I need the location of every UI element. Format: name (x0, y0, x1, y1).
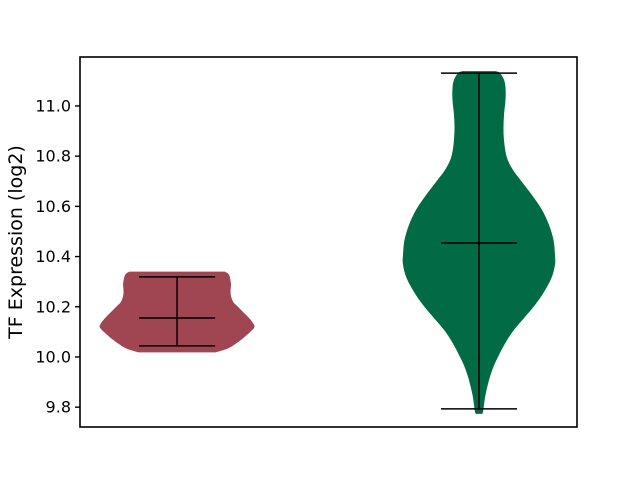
y-tick-label-5: 10.0 (35, 347, 71, 366)
y-tick-label-6: 9.8 (46, 398, 71, 417)
y-axis-label: TF Expression (log2) (5, 145, 27, 340)
y-tick-label-2: 10.6 (35, 197, 71, 216)
y-tick-label-3: 10.4 (35, 247, 71, 266)
y-tick-label-0: 11.0 (35, 96, 71, 115)
y-tick-label-4: 10.2 (35, 297, 71, 316)
violin-chart: 11.010.810.610.410.210.09.8TF Expression… (0, 0, 640, 480)
y-tick-label-1: 10.8 (35, 147, 71, 166)
figure: 11.010.810.610.410.210.09.8TF Expression… (0, 0, 640, 480)
